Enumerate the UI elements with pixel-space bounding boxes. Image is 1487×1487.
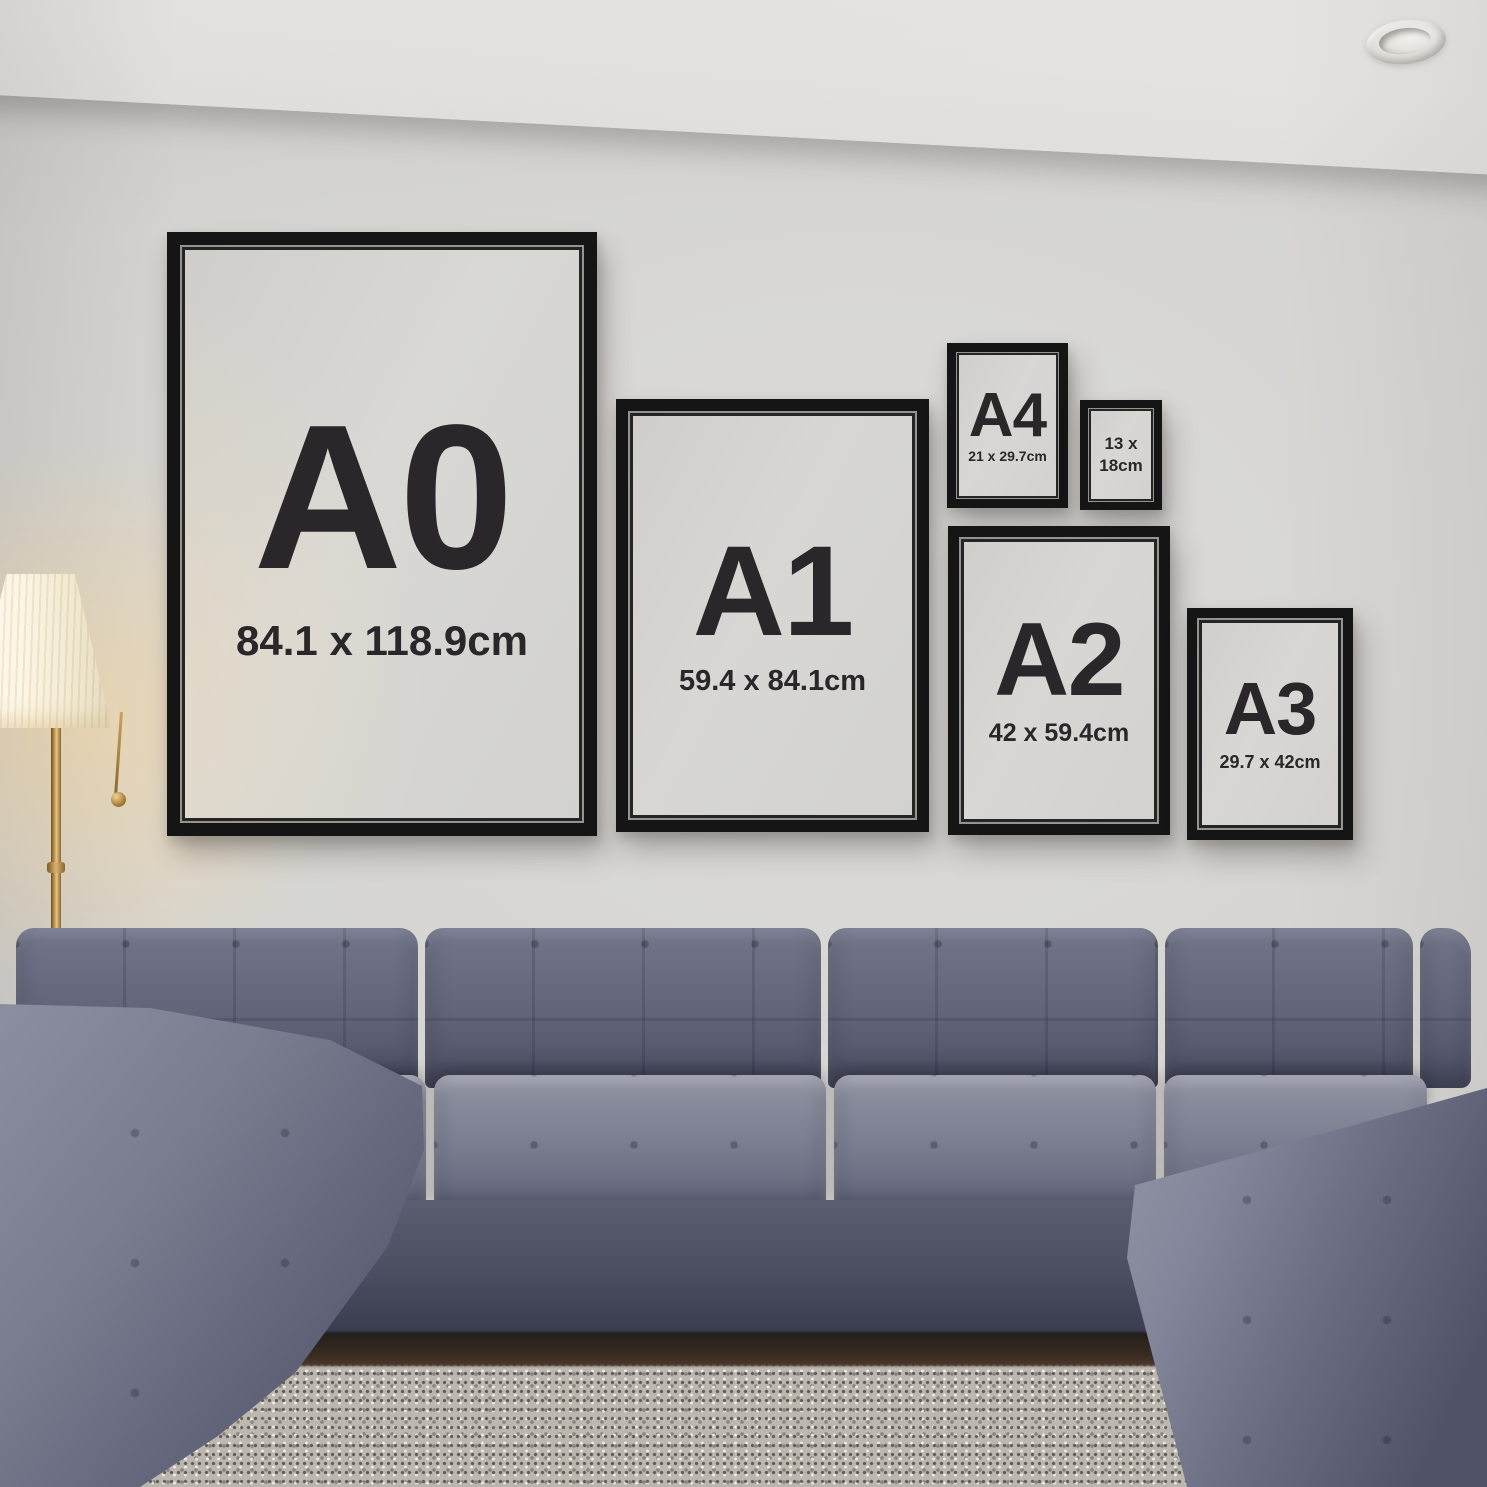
floor-lamp-pole <box>51 722 61 942</box>
frame-size-line1: 13 x <box>1104 433 1137 455</box>
frame-size-line2: 18cm <box>1099 455 1142 477</box>
floor-lamp-pull-chain-ball <box>111 792 126 807</box>
frame-size: 29.7 x 42cm <box>1219 752 1320 773</box>
poster-frame-a1: A1 59.4 x 84.1cm <box>616 399 929 832</box>
floor-lamp-collar <box>47 862 65 873</box>
poster-frame-13x18: 13 x 18cm <box>1080 400 1162 510</box>
frame-label: A0 <box>253 403 510 593</box>
poster-frame-a4: A4 21 x 29.7cm <box>947 343 1068 508</box>
sofa-back-cushion <box>1420 928 1471 1088</box>
frame-size: 21 x 29.7cm <box>968 448 1047 464</box>
poster-frame-a0: A0 84.1 x 118.9cm <box>167 232 597 836</box>
frame-mat: 13 x 18cm <box>1088 408 1154 502</box>
frame-label: A2 <box>994 613 1124 709</box>
sofa-back-cushion <box>425 928 821 1088</box>
frame-size: 59.4 x 84.1cm <box>679 665 866 698</box>
frame-mat: A1 59.4 x 84.1cm <box>628 411 917 820</box>
frame-mat: A4 21 x 29.7cm <box>956 352 1059 499</box>
frame-label: A1 <box>693 533 853 651</box>
frame-mat: A3 29.7 x 42cm <box>1197 618 1343 830</box>
sofa-seat-cushion <box>434 1075 826 1215</box>
poster-frame-a3: A3 29.7 x 42cm <box>1187 608 1353 840</box>
sofa-seat-cushion <box>834 1075 1156 1215</box>
sofa-back-cushion <box>828 928 1158 1088</box>
living-room-photo: A0 84.1 x 118.9cm A1 59.4 x 84.1cm A4 21… <box>0 0 1487 1487</box>
frame-size: 84.1 x 118.9cm <box>236 617 528 665</box>
poster-frame-a2: A2 42 x 59.4cm <box>948 526 1170 835</box>
frame-size: 42 x 59.4cm <box>989 719 1129 748</box>
sofa-back-cushion <box>1165 928 1413 1088</box>
frame-label: A4 <box>969 387 1046 444</box>
frame-mat: A0 84.1 x 118.9cm <box>180 245 584 823</box>
frame-label: A3 <box>1224 675 1316 743</box>
recessed-ceiling-light-inner <box>1377 25 1432 57</box>
frame-mat: A2 42 x 59.4cm <box>959 537 1159 824</box>
